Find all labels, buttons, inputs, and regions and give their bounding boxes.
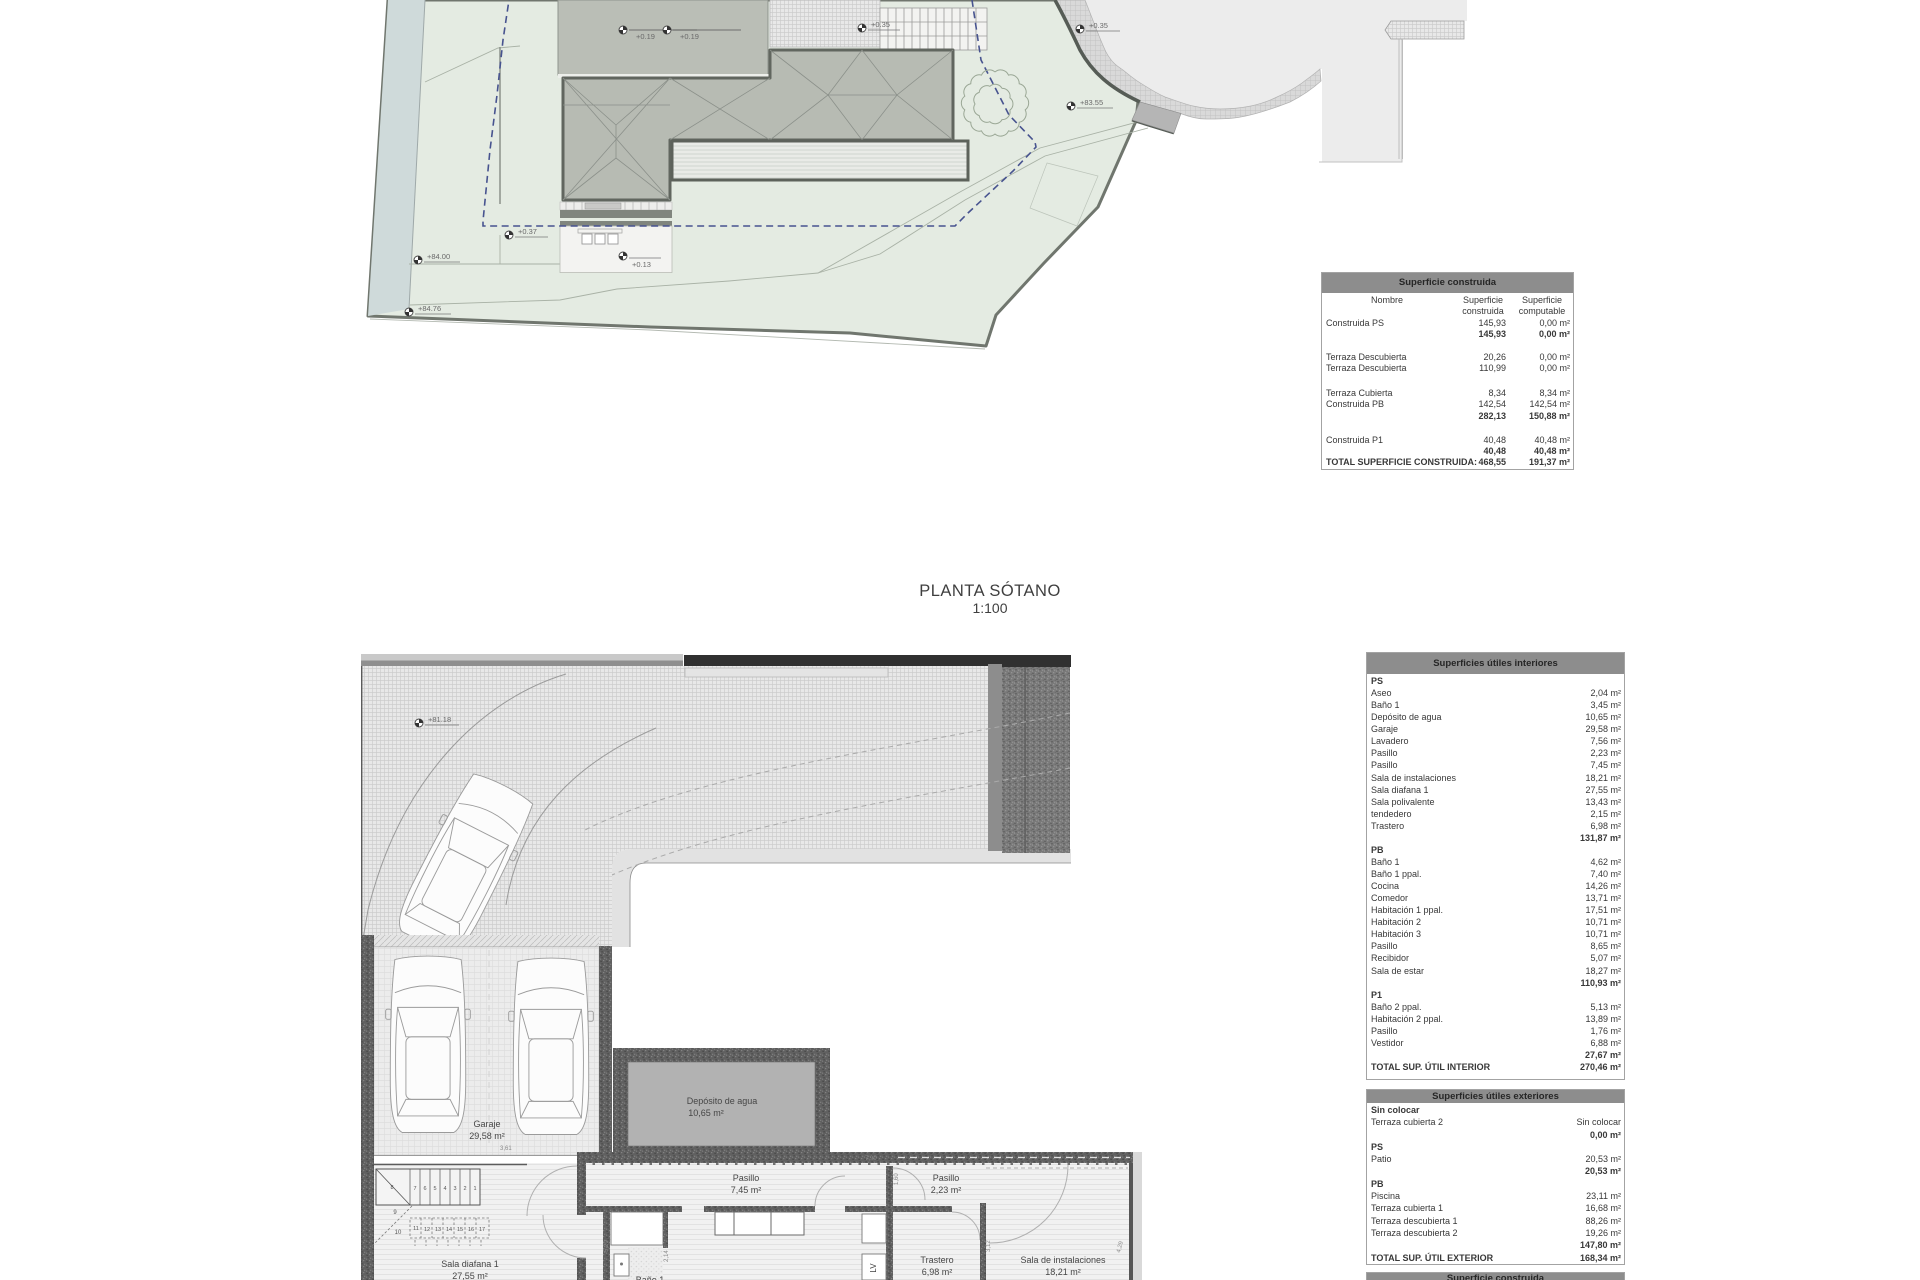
svg-text:2,14: 2,14 bbox=[664, 1250, 670, 1262]
svg-text:18,21 m²: 18,21 m² bbox=[1045, 1267, 1081, 1277]
svg-text:+0.19: +0.19 bbox=[680, 32, 699, 41]
svg-text:1: 1 bbox=[473, 1186, 476, 1192]
svg-text:11: 11 bbox=[413, 1226, 419, 1232]
svg-text:5,20: 5,20 bbox=[604, 1240, 610, 1252]
svg-text:Garaje: Garaje bbox=[473, 1119, 500, 1129]
svg-text:+0.35: +0.35 bbox=[871, 20, 890, 29]
svg-text:+83.55: +83.55 bbox=[1080, 98, 1103, 107]
svg-text:14: 14 bbox=[446, 1227, 452, 1233]
svg-text:+0.37: +0.37 bbox=[518, 227, 537, 236]
svg-text:3,61: 3,61 bbox=[500, 1146, 512, 1152]
svg-text:29,58 m²: 29,58 m² bbox=[469, 1131, 505, 1141]
svg-text:1,60: 1,60 bbox=[894, 1173, 900, 1185]
svg-text:13: 13 bbox=[435, 1227, 441, 1233]
svg-text:2,23 m²: 2,23 m² bbox=[931, 1185, 962, 1195]
svg-text:+84.76: +84.76 bbox=[418, 304, 441, 313]
svg-text:4: 4 bbox=[443, 1186, 446, 1192]
svg-text:7: 7 bbox=[413, 1186, 416, 1192]
svg-text:Baño 1: Baño 1 bbox=[636, 1275, 665, 1280]
svg-text:Sala de instalaciones: Sala de instalaciones bbox=[1020, 1255, 1106, 1265]
svg-text:+81.18: +81.18 bbox=[428, 715, 451, 724]
svg-text:7,90: 7,90 bbox=[865, 1156, 877, 1162]
svg-text:5: 5 bbox=[433, 1186, 436, 1192]
svg-text:27,55 m²: 27,55 m² bbox=[452, 1271, 488, 1280]
svg-text:LV: LV bbox=[869, 1263, 878, 1273]
svg-text:Pasillo: Pasillo bbox=[933, 1173, 960, 1183]
svg-text:3,12: 3,12 bbox=[986, 1240, 992, 1252]
svg-text:10: 10 bbox=[395, 1230, 402, 1236]
svg-text:Pasillo: Pasillo bbox=[733, 1173, 760, 1183]
svg-text:Depósito de agua: Depósito de agua bbox=[687, 1096, 758, 1106]
svg-text:+0.19: +0.19 bbox=[636, 32, 655, 41]
svg-text:12: 12 bbox=[424, 1227, 430, 1233]
svg-text:3: 3 bbox=[453, 1186, 456, 1192]
svg-text:7,45 m²: 7,45 m² bbox=[731, 1185, 762, 1195]
svg-text:+0.13: +0.13 bbox=[632, 260, 651, 269]
svg-text:16: 16 bbox=[468, 1227, 474, 1233]
svg-text:6: 6 bbox=[423, 1186, 426, 1192]
svg-text:15: 15 bbox=[457, 1227, 463, 1233]
svg-text:Sala diafana 1: Sala diafana 1 bbox=[441, 1259, 499, 1269]
svg-text:6,98 m²: 6,98 m² bbox=[922, 1267, 953, 1277]
svg-text:Trastero: Trastero bbox=[920, 1255, 953, 1265]
svg-text:+84.00: +84.00 bbox=[427, 252, 450, 261]
svg-text:2: 2 bbox=[463, 1186, 466, 1192]
svg-text:+0.35: +0.35 bbox=[1089, 21, 1108, 30]
svg-text:10,65 m²: 10,65 m² bbox=[688, 1108, 724, 1118]
svg-text:8: 8 bbox=[390, 1185, 393, 1191]
svg-text:17: 17 bbox=[479, 1227, 485, 1233]
